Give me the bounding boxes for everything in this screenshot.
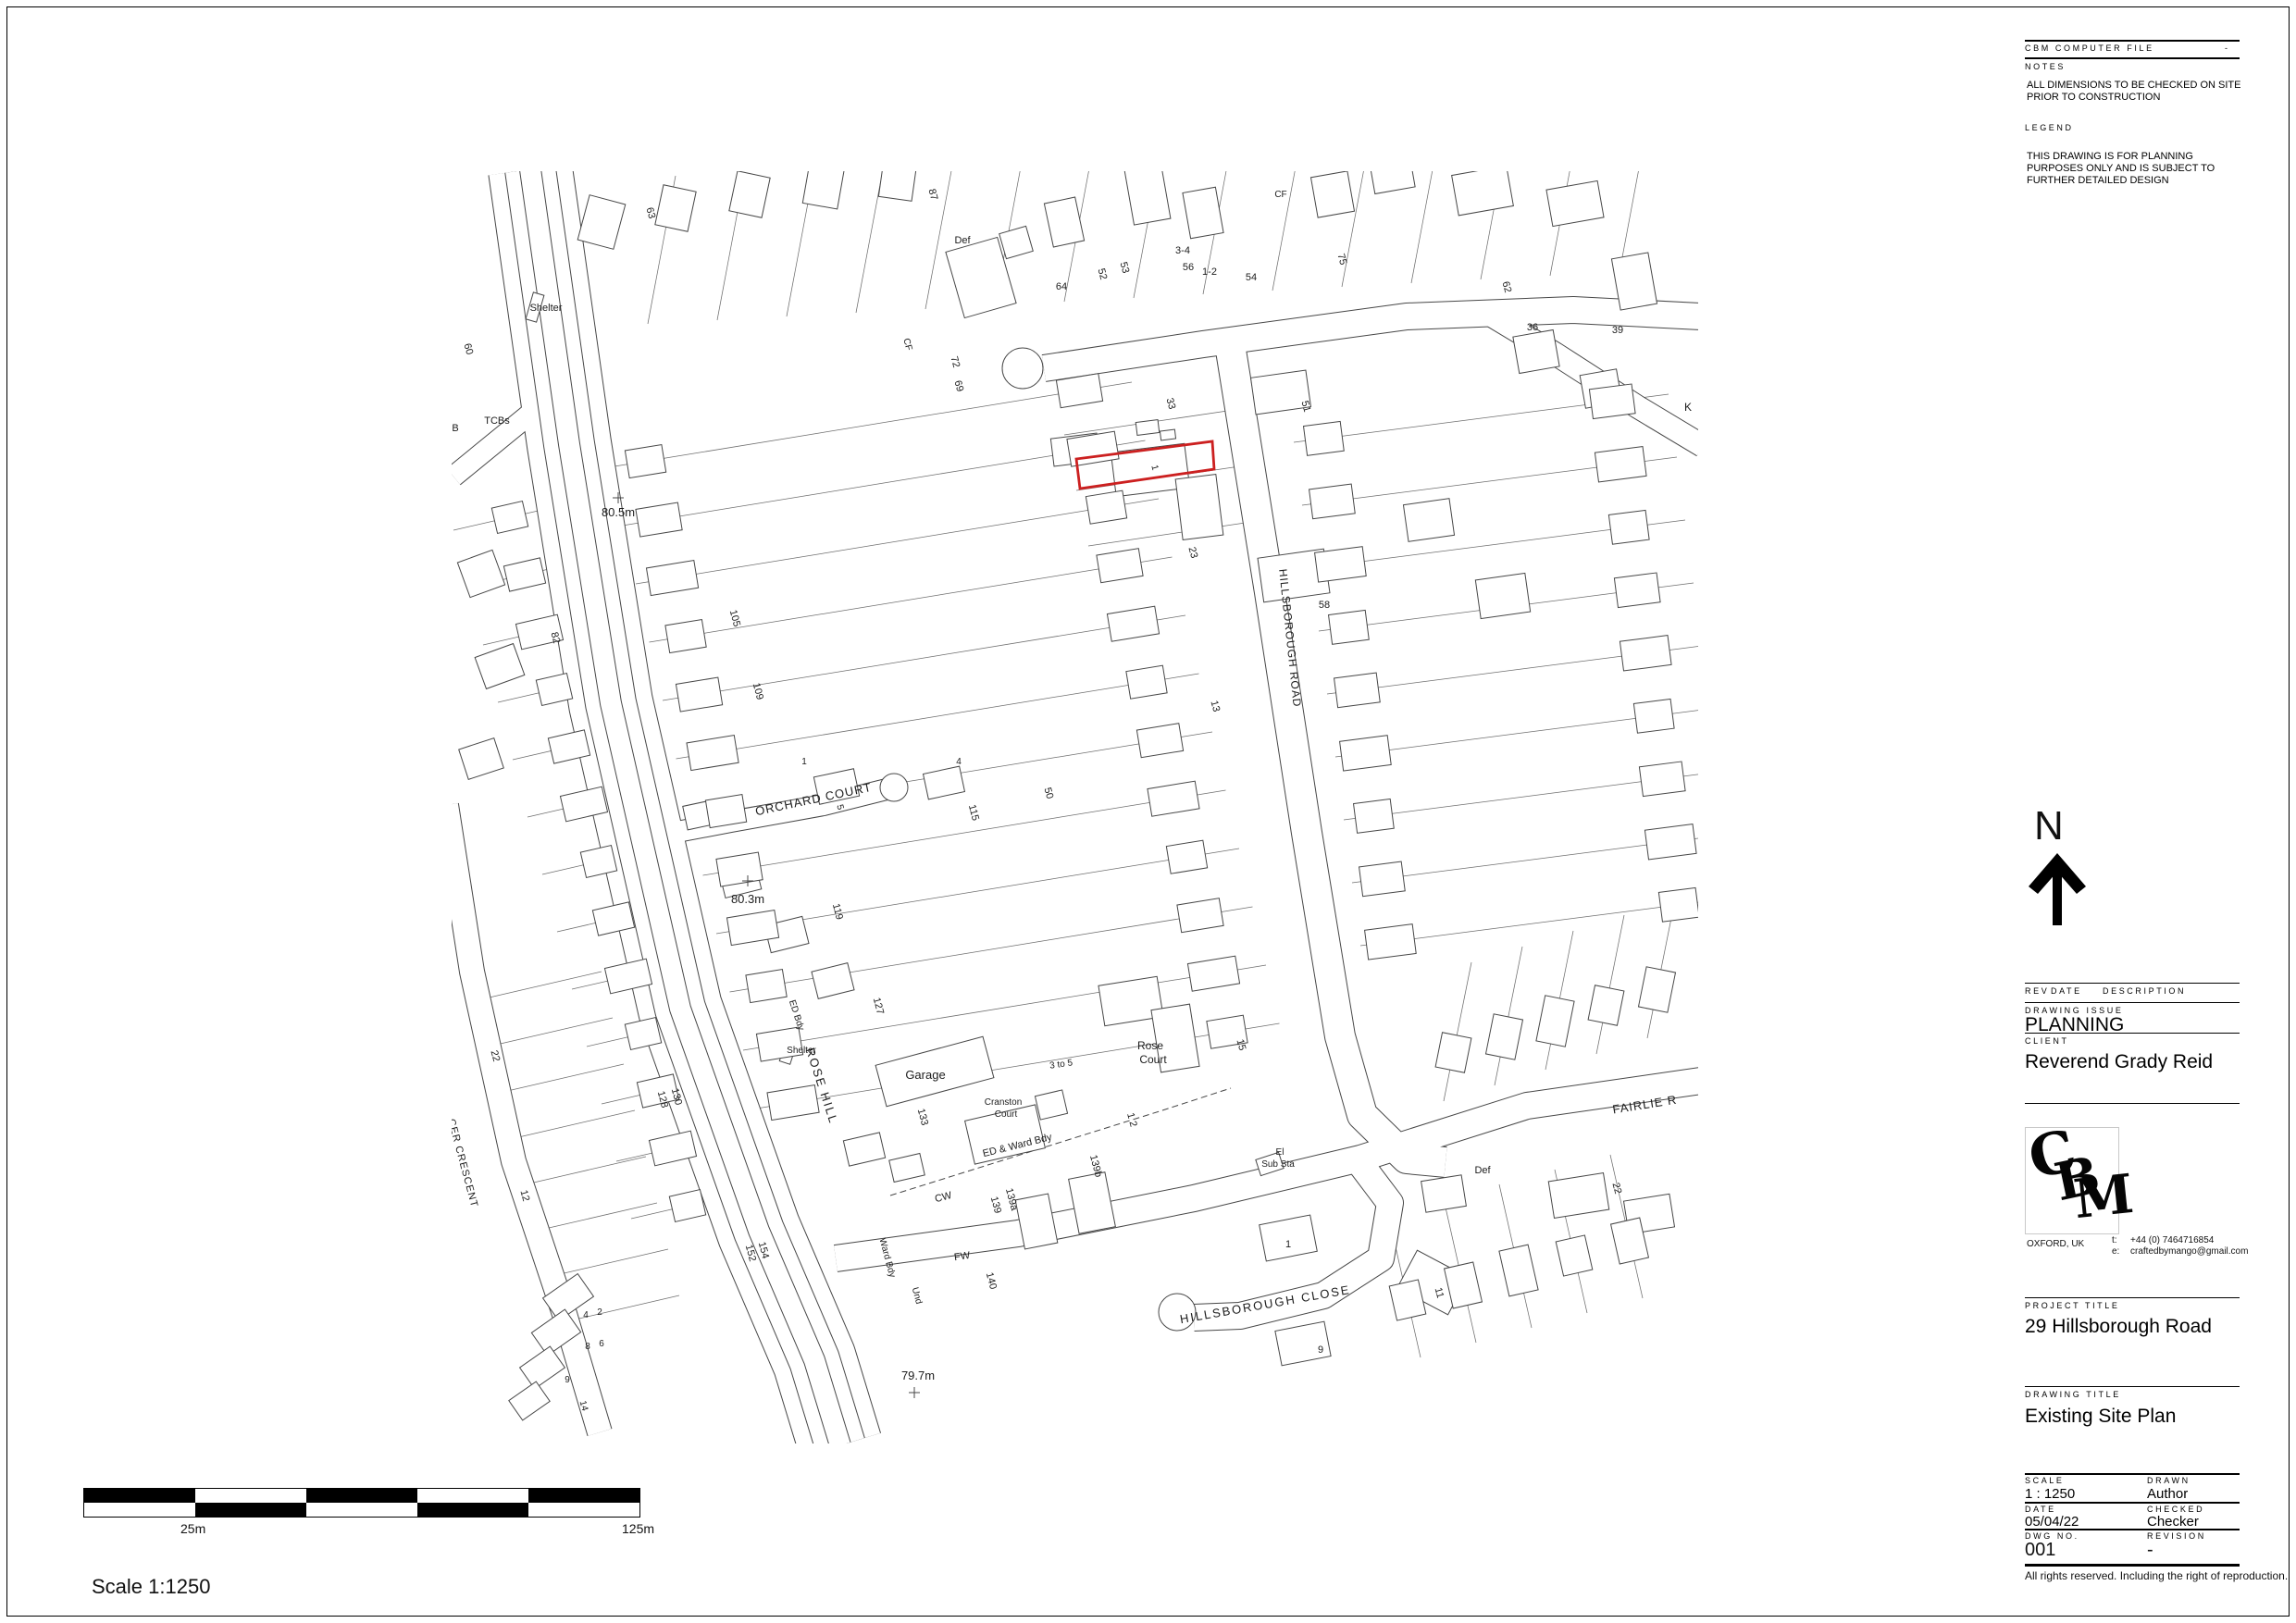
- building-outline: [1359, 861, 1406, 897]
- building-outline: [1183, 187, 1223, 238]
- map-label: Und: [910, 1286, 924, 1306]
- building-outline: [1556, 1235, 1593, 1276]
- building-outline: [1148, 781, 1199, 816]
- building-outline: [655, 185, 696, 232]
- notes-line-2: PRIOR TO CONSTRUCTION: [2027, 92, 2160, 104]
- building-outline: [1369, 150, 1415, 193]
- map-label: 33: [1164, 397, 1178, 411]
- map-label: 13: [1209, 700, 1222, 713]
- building-outline: [1044, 197, 1084, 247]
- map-label: 62: [1500, 280, 1514, 294]
- map-label: 9: [1318, 1344, 1323, 1356]
- site-plan-map: ROSE HILLHILLSBOROUGH ROADORCHARD COURTH…: [0, 0, 2296, 1623]
- map-label: 4: [583, 1310, 589, 1320]
- building-outline: [1588, 985, 1624, 1026]
- map-label: 75: [1335, 253, 1349, 266]
- rule: [2025, 1033, 2240, 1034]
- map-label: 72: [949, 355, 962, 369]
- tel-value: +44 (0) 7464716854: [2130, 1235, 2214, 1245]
- email-value: craftedbymango@gmail.com: [2130, 1246, 2248, 1257]
- map-label: 133: [915, 1108, 930, 1127]
- map-label: 69: [952, 379, 966, 393]
- building-outline: [843, 1133, 885, 1166]
- map-label: Court: [1139, 1053, 1167, 1066]
- map-label: 139: [988, 1196, 1003, 1215]
- north-arrow-icon: [2016, 849, 2099, 933]
- scale-caption: Scale 1:1250: [92, 1575, 210, 1599]
- map-label: ED Bdy: [787, 998, 806, 1032]
- map-label: Cranston: [985, 1097, 1023, 1108]
- date-value: 05/04/22: [2025, 1514, 2079, 1530]
- drawing-sheet: ROSE HILLHILLSBOROUGH ROADORCHARD COURTH…: [0, 0, 2296, 1623]
- building-outline: [1644, 824, 1696, 860]
- map-label: 139a: [1003, 1187, 1020, 1213]
- building-outline: [1097, 549, 1143, 583]
- map-content: ROSE HILLHILLSBOROUGH ROADORCHARD COURTH…: [445, 124, 1735, 1445]
- map-label: 50: [1042, 787, 1056, 800]
- drawn-value: Author: [2147, 1486, 2188, 1502]
- map-label: Shelter: [787, 1046, 816, 1056]
- building-outline: [1304, 421, 1345, 455]
- building-outline: [1160, 429, 1175, 440]
- rev-column-label: REV: [2025, 986, 2049, 996]
- building-outline: [1639, 762, 1685, 797]
- building-outline: [1035, 1090, 1067, 1120]
- north-label: N: [2034, 803, 2064, 849]
- building-outline: [1309, 484, 1356, 519]
- map-label: 127: [871, 997, 886, 1016]
- map-label: 87: [926, 188, 940, 202]
- scale-bar-segment: [528, 1503, 639, 1517]
- building-outline: [1595, 447, 1646, 482]
- building-outline: [1548, 1173, 1609, 1219]
- building-outline: [503, 558, 545, 591]
- building-outline: [1589, 384, 1635, 419]
- map-label: 6: [599, 1339, 604, 1349]
- building-outline: [1608, 510, 1649, 544]
- map-label: 53: [1118, 261, 1132, 275]
- building-outline: [924, 766, 965, 799]
- map-label: CF: [1274, 190, 1286, 200]
- building-outline: [1435, 1033, 1471, 1073]
- email-label: e:: [2112, 1246, 2119, 1257]
- rule: [2025, 1502, 2240, 1504]
- map-label: 39: [1612, 325, 1623, 336]
- building-outline: [1166, 840, 1207, 873]
- map-label: FW: [953, 1250, 971, 1263]
- drawing-title-label: DRAWING TITLE: [2025, 1390, 2121, 1399]
- building-outline: [669, 1190, 705, 1222]
- building-outline: [475, 644, 525, 689]
- map-label: 58: [1319, 600, 1330, 611]
- map-label: Rose: [1137, 1039, 1163, 1052]
- legend-line-2: PURPOSES ONLY AND IS SUBJECT TO: [2027, 163, 2215, 175]
- project-title: 29 Hillsborough Road: [2025, 1316, 2212, 1338]
- map-label: 119: [830, 902, 845, 921]
- legend-line-3: FURTHER DETAILED DESIGN: [2027, 175, 2169, 187]
- building-outline: [459, 738, 504, 780]
- map-label: 8: [585, 1342, 590, 1352]
- building-outline: [1107, 606, 1159, 641]
- building-outline: [802, 161, 844, 209]
- building-outline: [1452, 166, 1514, 216]
- map-label: 3 to 5: [1049, 1058, 1074, 1071]
- building-outline: [665, 620, 706, 653]
- scale-bar-segment: [306, 1489, 417, 1503]
- building-outline: [1136, 420, 1160, 436]
- rule: [2025, 1002, 2240, 1003]
- building-outline: [756, 1027, 802, 1061]
- map-label: TCBs: [484, 415, 510, 427]
- checked-value: Checker: [2147, 1514, 2199, 1530]
- building-outline: [577, 195, 626, 250]
- scale-bar-segment: [195, 1503, 306, 1517]
- rule: [2025, 1386, 2240, 1387]
- map-label: 80.5m: [602, 505, 635, 519]
- rule: [2025, 40, 2240, 42]
- scale-bar-segment: [417, 1503, 528, 1517]
- building-outline: [687, 736, 738, 771]
- building-outline: [1275, 1321, 1331, 1366]
- map-label: El: [1276, 1147, 1285, 1158]
- building-outline: [491, 502, 527, 534]
- scale-bar-end-label: 125m: [622, 1521, 654, 1536]
- building-outline: [509, 1381, 550, 1420]
- building-outline: [1421, 1175, 1467, 1212]
- date-label: DATE: [2025, 1505, 2056, 1514]
- map-label: 60: [462, 342, 476, 356]
- legend-label: LEGEND: [2025, 123, 2074, 132]
- map-label: 80.3m: [731, 892, 764, 906]
- map-label: 115: [966, 803, 981, 822]
- building-outline: [746, 970, 787, 1003]
- building-outline: [1126, 665, 1167, 699]
- building-outline: [1546, 180, 1604, 226]
- building-outline: [1499, 1245, 1538, 1296]
- rule: [2025, 1529, 2240, 1530]
- computer-file-value: -: [2225, 43, 2230, 53]
- building-outline: [1658, 887, 1699, 922]
- checked-label: CHECKED: [2147, 1505, 2204, 1514]
- logo-city: OXFORD, UK: [2027, 1239, 2084, 1249]
- map-label: K: [1684, 401, 1692, 414]
- map-label: 109: [751, 682, 765, 701]
- map-label: 15: [1235, 1038, 1248, 1052]
- building-outline: [812, 963, 854, 999]
- company-logo: C B M: [2025, 1127, 2119, 1234]
- map-label: 79.7m: [901, 1369, 935, 1382]
- map-label: 3-4: [1175, 245, 1190, 256]
- building-outline: [1513, 329, 1559, 373]
- project-title-label: PROJECT TITLE: [2025, 1301, 2119, 1310]
- date-column-label: DATE: [2051, 986, 2082, 996]
- building-outline: [1638, 967, 1675, 1012]
- building-outline: [646, 561, 698, 596]
- building-outline: [1620, 636, 1671, 671]
- building-outline: [457, 550, 504, 597]
- notes-label: NOTES: [2025, 62, 2066, 71]
- map-label: Sub Sta: [1261, 1159, 1295, 1170]
- map-label: 23: [1186, 546, 1200, 560]
- building-outline: [729, 171, 770, 218]
- rule: [2025, 1103, 2240, 1104]
- scale-bar-segment: [417, 1489, 528, 1503]
- building-outline: [1334, 673, 1381, 708]
- logo-letter-m: M: [2071, 1162, 2137, 1231]
- map-label: 36: [1527, 322, 1538, 333]
- revision-label: REVISION: [2147, 1531, 2206, 1541]
- scale-value: 1 : 1250: [2025, 1486, 2075, 1502]
- dwg-no-value: 001: [2025, 1540, 2055, 1561]
- map-label: 56: [1183, 262, 1194, 273]
- building-outline: [1177, 898, 1223, 933]
- scale-bar: [83, 1488, 640, 1518]
- building-outline: [767, 1085, 819, 1121]
- scale-bar-segment: [528, 1489, 639, 1503]
- map-label: 9: [565, 1375, 570, 1385]
- tel-label: t:: [2112, 1235, 2117, 1245]
- map-label: 52: [1096, 267, 1110, 281]
- client-value: Reverend Grady Reid: [2025, 1051, 2213, 1073]
- building-outline: [1175, 475, 1223, 540]
- description-column-label: DESCRIPTION: [2103, 986, 2186, 996]
- building-outline: [625, 445, 665, 478]
- building-outline: [1365, 924, 1417, 960]
- revision-value: -: [2147, 1540, 2153, 1561]
- legend-line-1: THIS DRAWING IS FOR PLANNING: [2027, 151, 2193, 163]
- building-outline: [705, 795, 746, 828]
- scale-label: SCALE: [2025, 1476, 2065, 1485]
- building-outline: [676, 677, 722, 712]
- benchmark-cross: [909, 1387, 920, 1398]
- scale-bar-segment: [306, 1503, 417, 1517]
- building-outline: [536, 674, 572, 706]
- drawn-label: DRAWN: [2147, 1476, 2191, 1485]
- map-label: 2: [597, 1307, 602, 1318]
- notes-line-1: ALL DIMENSIONS TO BE CHECKED ON SITE: [2027, 80, 2240, 92]
- building-outline: [1260, 1215, 1318, 1261]
- map-label: B: [452, 423, 458, 434]
- map-label: 105: [727, 609, 742, 628]
- building-outline: [1136, 724, 1183, 758]
- map-label: 1 2: [1124, 1111, 1139, 1128]
- building-outline: [1633, 699, 1674, 733]
- building-outline: [1340, 736, 1392, 771]
- building-outline: [636, 502, 682, 537]
- building-outline: [1485, 1014, 1522, 1059]
- building-outline: [1086, 490, 1126, 524]
- building-outline: [889, 1153, 925, 1182]
- rule: [2025, 983, 2240, 984]
- map-label: Shelter: [530, 303, 563, 314]
- building-outline: [1475, 573, 1530, 618]
- map-label: 51: [1299, 400, 1313, 414]
- scale-bar-segment: [84, 1489, 195, 1503]
- map-label: 1: [801, 757, 807, 767]
- map-label: 140: [984, 1271, 999, 1291]
- map-label: Court: [995, 1109, 1018, 1120]
- rule: [2025, 1297, 2240, 1298]
- drawing-title: Existing Site Plan: [2025, 1406, 2176, 1428]
- computer-file-label: CBM COMPUTER FILE: [2025, 43, 2154, 53]
- building-outline: [1329, 610, 1370, 644]
- building-outline: [1536, 996, 1574, 1047]
- map-label: 22: [1610, 1182, 1624, 1196]
- map-label: 64: [1056, 281, 1067, 292]
- building-outline: [520, 1346, 565, 1389]
- scale-bar-mid-label: 25m: [180, 1521, 205, 1536]
- building-outline: [1315, 547, 1367, 582]
- map-label: CF: [900, 337, 913, 352]
- building-outline: [1403, 499, 1454, 542]
- map-label: Def: [954, 235, 971, 246]
- rule: [2025, 1564, 2240, 1567]
- map-label: CW: [934, 1190, 953, 1205]
- map-label: 4: [956, 757, 962, 767]
- building-outline: [1310, 171, 1354, 217]
- building-outline: [878, 160, 916, 202]
- building-outline: [1614, 573, 1660, 608]
- scale-bar-segment: [195, 1489, 306, 1503]
- client-label: CLIENT: [2025, 1036, 2069, 1046]
- map-label: CER CRESCENT: [445, 1118, 479, 1209]
- map-label: 1-2: [1202, 266, 1217, 278]
- map-label: 1: [1285, 1239, 1291, 1250]
- rights-footer: All rights reserved. Including the right…: [2025, 1569, 2288, 1582]
- building-outline: [1354, 799, 1395, 833]
- map-label: 54: [1246, 272, 1257, 283]
- scale-bar-segment: [84, 1503, 195, 1517]
- rule: [2025, 1473, 2240, 1475]
- map-label: 63: [644, 206, 658, 220]
- building-outline: [1124, 164, 1171, 225]
- map-label: Garage: [905, 1068, 945, 1082]
- map-label: Def: [1474, 1165, 1491, 1176]
- building-outline: [1187, 956, 1239, 991]
- rule: [2025, 57, 2240, 59]
